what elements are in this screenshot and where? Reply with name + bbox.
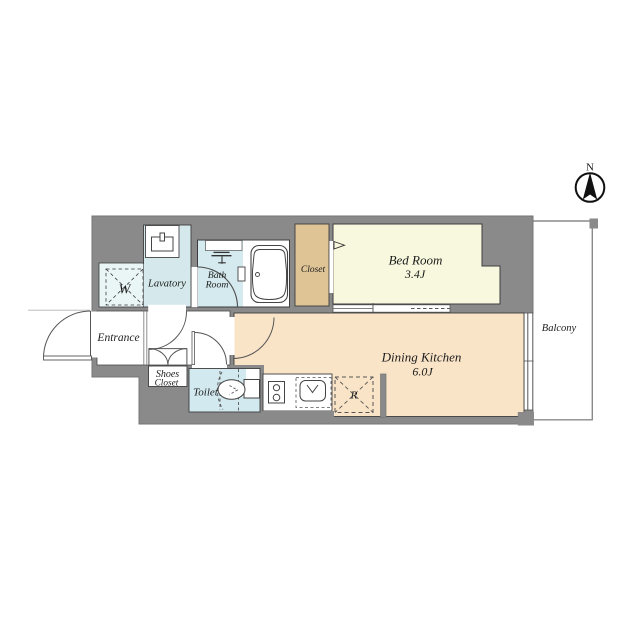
svg-text:Room: Room bbox=[205, 280, 229, 291]
svg-text:Closet: Closet bbox=[301, 265, 326, 275]
svg-text:R: R bbox=[350, 390, 358, 402]
svg-text:W: W bbox=[119, 283, 132, 298]
svg-text:Closet: Closet bbox=[155, 379, 179, 389]
svg-text:6.0J: 6.0J bbox=[412, 364, 433, 378]
svg-text:Balcony: Balcony bbox=[542, 323, 577, 334]
svg-text:3.4J: 3.4J bbox=[404, 267, 426, 281]
svg-text:Toilet: Toilet bbox=[193, 387, 219, 399]
svg-text:Lavatory: Lavatory bbox=[147, 279, 186, 290]
svg-text:Entrance: Entrance bbox=[96, 332, 139, 344]
svg-text:Dining Kitchen: Dining Kitchen bbox=[381, 350, 462, 365]
svg-text:Bed Room: Bed Room bbox=[389, 253, 443, 268]
svg-text:N: N bbox=[586, 162, 594, 174]
